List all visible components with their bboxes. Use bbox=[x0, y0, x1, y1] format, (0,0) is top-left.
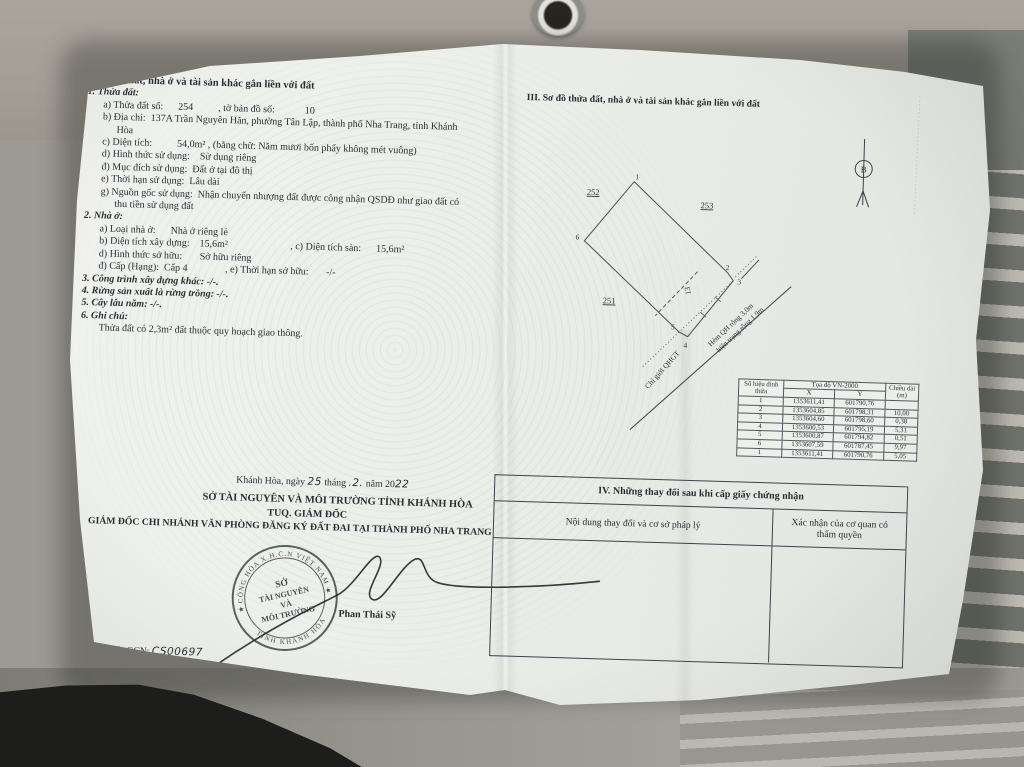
photo-of-land-certificate: II. Thửa đất, nhà ở và tài sản khác gắn … bbox=[0, 0, 1024, 767]
striped-fabric-bottom-right bbox=[680, 690, 1024, 767]
certificate-paper: II. Thửa đất, nhà ở và tài sản khác gắn … bbox=[0, 0, 1024, 767]
photo-vignette bbox=[0, 0, 1024, 767]
